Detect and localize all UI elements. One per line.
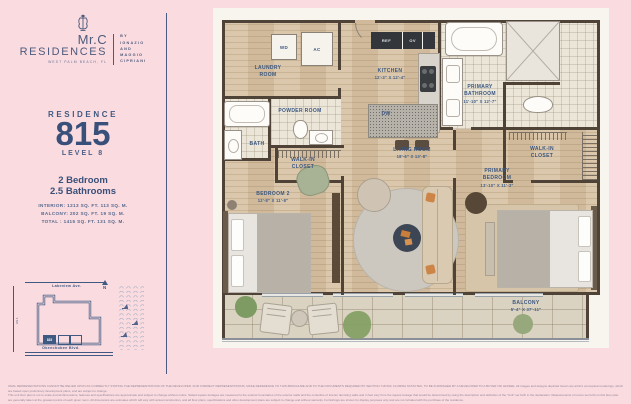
chair-slat: [266, 314, 285, 317]
ref-label: REF: [382, 38, 391, 43]
room-label-living: LIVING ROOM 18'-6" x 13'-8": [382, 147, 442, 160]
balcony-table: [291, 310, 308, 327]
north-label: N: [103, 285, 106, 290]
room-label-powder: POWDER ROOM: [278, 108, 322, 115]
room-label-balcony: BALCONY 5'-4" x 37'-11": [501, 300, 551, 313]
room-name: KITCHEN: [360, 68, 420, 75]
room-name: BALCONY: [501, 300, 551, 307]
sink: [228, 139, 239, 153]
powder-sink: [309, 130, 333, 145]
bathroom-count: 2.5 Bathrooms: [0, 186, 166, 197]
logo-byline: BY IGNAZIO AND MAGGIO CIPRIANI: [120, 33, 146, 64]
street-line-bottom-2: [25, 355, 113, 356]
logo-name: Mr.C: [20, 33, 108, 46]
disclaimer-line: are generally taken at the greatest poin…: [8, 398, 623, 403]
logo-sub: RESIDENCES: [20, 46, 108, 60]
ac-unit: AC: [301, 32, 333, 66]
bathtub: [224, 101, 270, 127]
chair-slat: [267, 308, 286, 311]
adjacent-unit-box: [70, 335, 82, 345]
toilet: [293, 120, 308, 139]
residence-number: 815: [0, 117, 166, 150]
adjacent-unit-box: [58, 335, 70, 345]
bed-bench: [485, 222, 495, 276]
balcony-side-wall: [586, 295, 589, 340]
bedroom-count: 2 Bedroom: [0, 175, 166, 186]
room-label-kitchen: KITCHEN 12'-3" x 12'-4": [360, 68, 420, 81]
street-bottom-label: Okeechobee Blvd.: [42, 346, 80, 350]
wall: [453, 130, 456, 150]
floor-plan: WD AC REF OV: [213, 8, 609, 348]
window: [475, 293, 543, 297]
oven: OV: [403, 32, 423, 49]
wall: [271, 145, 344, 148]
washer-dryer-unit: WD: [271, 34, 297, 60]
coffee-table: [393, 224, 421, 252]
room-name: LAUNDRY ROOM: [246, 65, 290, 80]
blanket: [498, 211, 550, 287]
shower: [506, 21, 560, 81]
wall: [597, 20, 600, 295]
room-dims: 12'-3" x 12'-4": [360, 75, 420, 81]
room-name: PRIMARY BEDROOM: [471, 168, 523, 183]
street-line-bottom: [25, 352, 113, 353]
kitchen-island: [368, 104, 438, 138]
table-decor: [405, 238, 413, 245]
wall: [471, 127, 600, 130]
ov-label: OV: [409, 38, 416, 43]
chair-slat: [312, 308, 331, 311]
pillow: [231, 219, 244, 251]
kitchen-appliance-band: REF OV: [371, 32, 435, 49]
lounge-chair: [259, 302, 292, 335]
street-line-top: [25, 282, 105, 283]
logo-location: WEST PALM BEACH, FL: [20, 60, 108, 65]
room-dims: 11'-10" x 12'-7": [454, 99, 506, 105]
disclaimer-line: ORAL REPRESENTATIONS CANNOT BE RELIED UP…: [8, 384, 623, 393]
media-console: [332, 193, 340, 283]
balcony-railing: [222, 338, 589, 340]
burner: [422, 69, 427, 74]
burner: [422, 83, 427, 88]
shower-glass-lines: [507, 22, 559, 80]
sailboat-hull: [121, 336, 127, 337]
dishwasher-label: DW: [378, 111, 394, 118]
pantry-cabinet: [423, 32, 435, 49]
room-dims: 18'-6" x 13'-8": [382, 154, 442, 160]
room-label-primary-bedroom: PRIMARY BEDROOM 13'-10" x 11'-3": [471, 168, 523, 189]
floorplan-brochure-page: Mr.C RESIDENCES WEST PALM BEACH, FL BY I…: [0, 0, 631, 404]
sidebar: Mr.C RESIDENCES WEST PALM BEACH, FL BY I…: [0, 0, 166, 404]
total-area: TOTAL : 1415 SQ. FT. 131 SQ. M.: [0, 219, 166, 224]
burner: [429, 69, 434, 74]
room-name: POWDER ROOM: [278, 108, 322, 115]
sofa-pillow: [425, 192, 435, 202]
balcony-potted-plant: [513, 314, 533, 334]
room-name: BATH: [243, 141, 271, 148]
logo-divider: [113, 34, 114, 65]
logo-by-line: CIPRIANI: [120, 58, 146, 64]
refrigerator: REF: [371, 32, 403, 49]
sink: [315, 133, 328, 143]
room-label-bedroom-2: BEDROOM 2 12'-8" x 11'-8": [247, 191, 299, 204]
room-name: WALK-IN CLOSET: [281, 157, 325, 172]
wall: [338, 20, 341, 70]
room-name: WALK-IN CLOSET: [519, 146, 565, 161]
primary-bed: [497, 210, 593, 288]
room-label-closet-primary: WALK-IN CLOSET: [519, 146, 565, 161]
sailboat-hull: [122, 308, 128, 309]
window: [262, 293, 323, 297]
wall: [441, 127, 453, 130]
room-name: PRIMARY BATHROOM: [454, 84, 506, 99]
balcony-railing-line: [222, 341, 589, 342]
pillow: [578, 216, 591, 247]
street-left-label: US 1: [15, 317, 19, 324]
wall: [222, 96, 341, 99]
wall: [503, 82, 560, 85]
wd-label: WD: [280, 45, 288, 50]
room-name: LIVING ROOM: [382, 147, 442, 154]
street-line-left: [13, 286, 14, 352]
street-top-label: Lakeview Ave.: [52, 284, 82, 288]
logo-wordmark: Mr.C RESIDENCES WEST PALM BEACH, FL: [20, 33, 108, 65]
ac-label: AC: [313, 47, 320, 52]
bathtub-basin: [229, 105, 265, 123]
wall: [341, 176, 344, 295]
burner: [429, 83, 434, 88]
balcony-area: BALCONY: 202 SQ. FT. 19 SQ. M.: [0, 211, 166, 216]
interior-area: INTERIOR: 1213 SQ. FT. 113 SQ. M.: [0, 203, 166, 208]
vertical-divider: [166, 13, 167, 374]
room-label-bath: BATH: [243, 141, 271, 148]
mrc-logo-icon: [75, 13, 91, 32]
bathtub-basin: [451, 27, 497, 51]
bed-2: [228, 213, 311, 293]
wall: [222, 20, 355, 23]
room-label-primary-bath: PRIMARY BATHROOM 11'-10" x 12'-7": [454, 84, 506, 105]
room-label-laundry: LAUNDRY ROOM: [246, 65, 290, 80]
room-dims: 13'-10" x 11'-3": [471, 183, 523, 189]
bath-vanity: [224, 130, 242, 160]
sink: [446, 65, 460, 83]
sofa-seam: [437, 189, 438, 281]
sofa: [422, 186, 453, 284]
lounge-chair: [307, 303, 340, 336]
logo-lockup: Mr.C RESIDENCES WEST PALM BEACH, FL BY I…: [0, 33, 166, 65]
room-label-closet-2: WALK-IN CLOSET: [281, 157, 325, 172]
sofa-pillow: [425, 264, 436, 275]
pillow: [578, 251, 591, 282]
unit-location-marker: 815: [43, 335, 56, 344]
toilet: [523, 96, 553, 113]
balcony-plant: [235, 296, 257, 318]
sailboat-hull: [132, 324, 138, 325]
residence-level: LEVEL 8: [0, 150, 166, 157]
blanket: [257, 214, 310, 292]
primary-bathtub: [445, 22, 503, 56]
cooktop: [420, 66, 436, 92]
nightstand: [227, 200, 237, 210]
table-decor: [400, 230, 410, 238]
side-table: [465, 192, 487, 214]
closet-shelving: [582, 132, 597, 180]
room-dims: 12'-8" x 11'-8": [247, 198, 299, 204]
balcony-grass-plant: [343, 311, 371, 339]
round-chair: [357, 178, 391, 212]
dw-label: DW: [378, 111, 394, 118]
legal-disclaimer: ORAL REPRESENTATIONS CANNOT BE RELIED UP…: [8, 384, 623, 403]
key-plan: Lakeview Ave. N 815 Okeechobee Blvd. US …: [10, 280, 160, 362]
room-dims: 5'-4" x 37'-11": [501, 307, 551, 313]
room-name: BEDROOM 2: [247, 191, 299, 198]
wall: [531, 180, 600, 183]
pillow: [231, 255, 244, 287]
chair-slat: [313, 314, 332, 317]
closet-shelving: [509, 132, 567, 140]
water-waves-pattern: [118, 284, 144, 350]
